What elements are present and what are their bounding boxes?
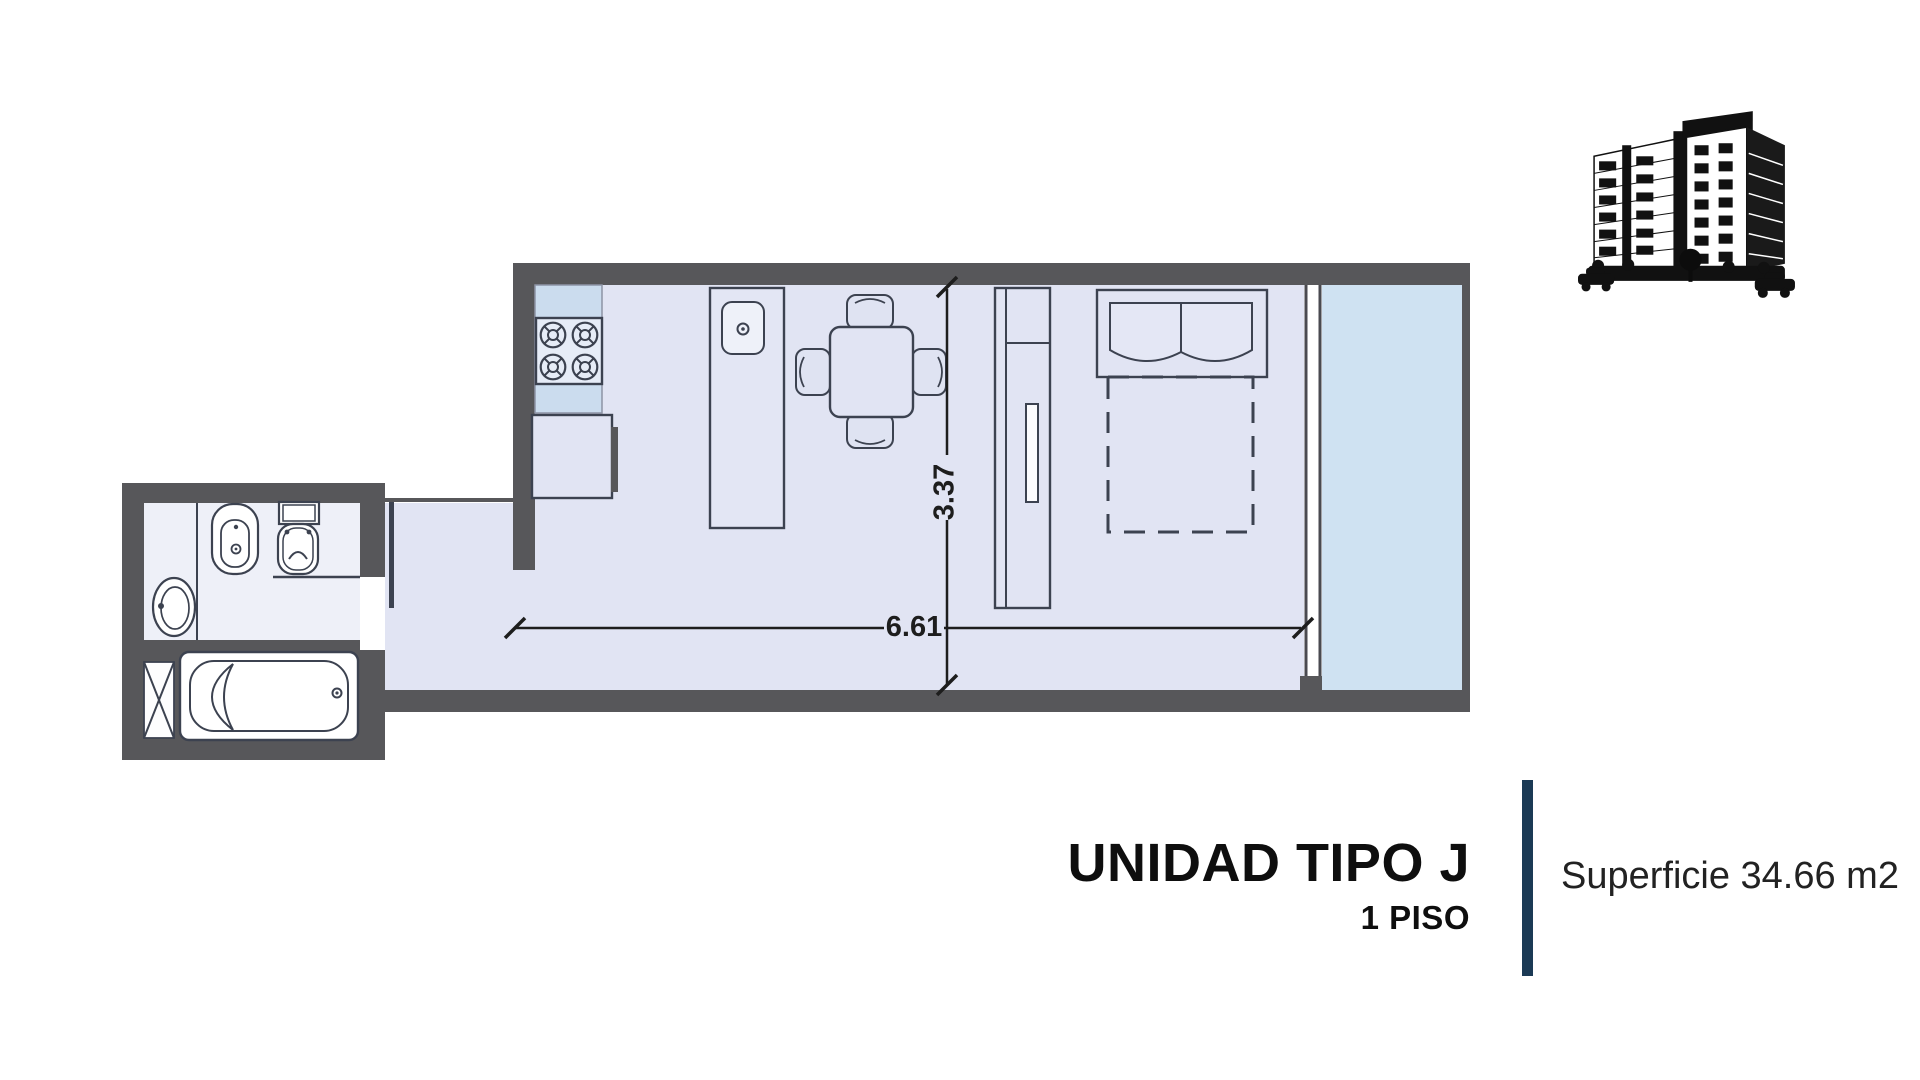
chair-icon (796, 349, 830, 395)
tree-icon (1679, 249, 1701, 271)
duct-shaft-icon (144, 662, 174, 738)
building-left-wing (1594, 139, 1675, 272)
chair-icon (847, 295, 893, 329)
toilet-icon (278, 502, 319, 574)
floorplan-page: 6.61 3.37 (0, 0, 1920, 1080)
balcony-floor (1322, 285, 1462, 690)
floor-label: 1 PISO (1361, 901, 1470, 934)
bathtub-icon (180, 652, 358, 740)
wardrobe-icon (995, 288, 1050, 608)
kitchen-island (710, 288, 784, 528)
island-sink-icon (722, 302, 764, 354)
bidet-icon (212, 504, 258, 574)
area-label: Superficie 34.66 m2 (1561, 857, 1899, 895)
entry-door-icon (389, 502, 394, 608)
stove-icon (536, 318, 602, 384)
washbasin-icon (153, 578, 195, 636)
building-illustration (1578, 100, 1804, 308)
entry-threshold (385, 498, 513, 502)
bathroom (122, 483, 385, 760)
chair-icon (912, 349, 946, 395)
accent-bar (1522, 780, 1533, 976)
dining-table-icon (830, 327, 913, 417)
dimension-width-label: 6.61 (886, 613, 942, 642)
dimension-height-label: 3.37 (931, 464, 960, 520)
building-side-face (1747, 127, 1785, 272)
chair-icon (847, 414, 893, 448)
refrigerator-icon (532, 415, 618, 498)
unit-title: UNIDAD TIPO J (1067, 836, 1470, 890)
